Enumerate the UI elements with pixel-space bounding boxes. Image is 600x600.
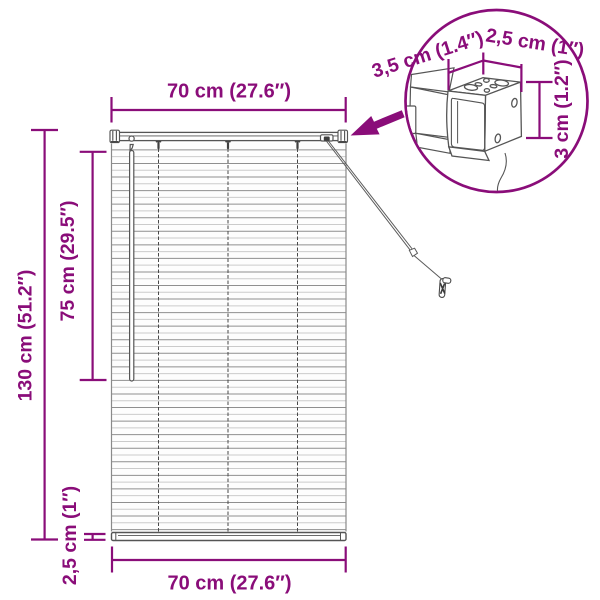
svg-text:2,5 cm (1″): 2,5 cm (1″)	[59, 486, 81, 585]
svg-text:130 cm (51.2″): 130 cm (51.2″)	[15, 270, 37, 402]
svg-text:70 cm (27.6″): 70 cm (27.6″)	[167, 573, 291, 595]
svg-text:3 cm (1.2″): 3 cm (1.2″)	[551, 59, 573, 158]
svg-text:75 cm (29.5″): 75 cm (29.5″)	[57, 201, 79, 322]
svg-text:70 cm (27.6″): 70 cm (27.6″)	[167, 81, 291, 103]
